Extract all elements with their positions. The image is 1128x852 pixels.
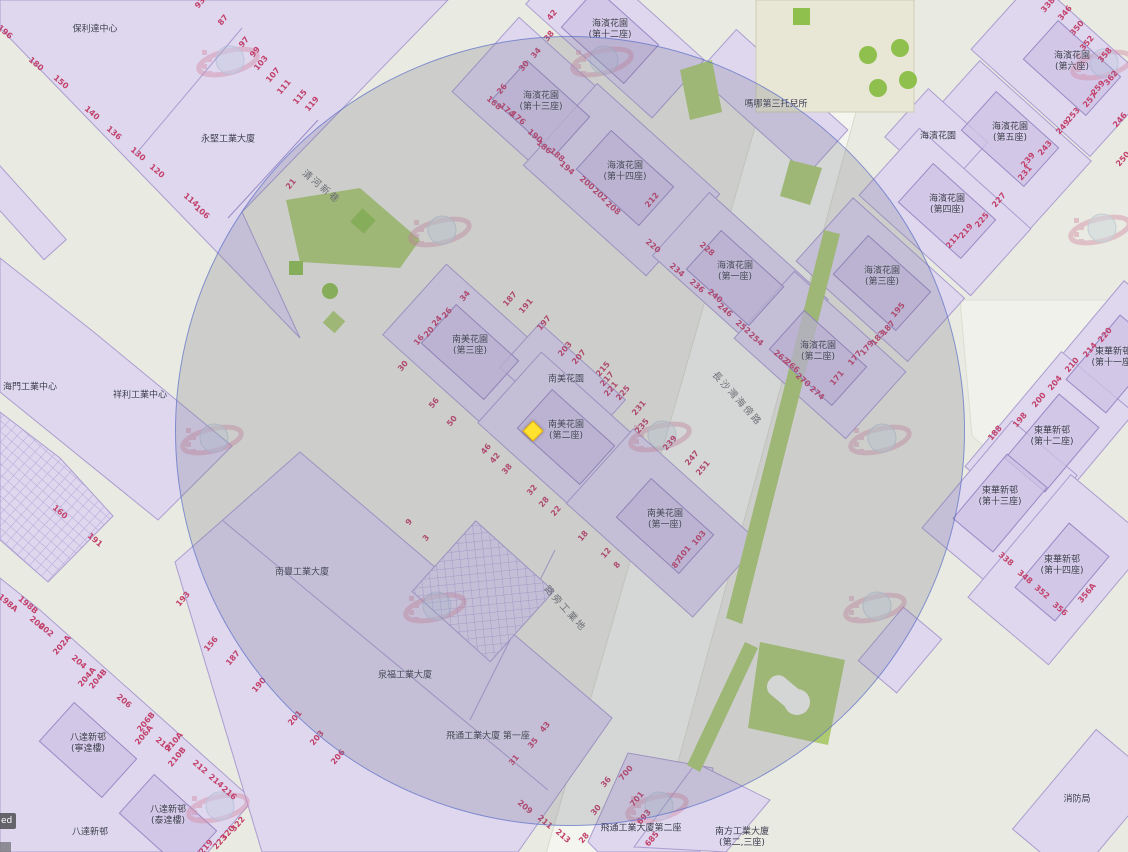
map-base-layer	[0, 0, 1128, 852]
attribution-text: ed	[1, 816, 12, 826]
playground	[756, 0, 917, 112]
attribution-badge: ed	[0, 813, 16, 829]
attribution-badge-small	[0, 842, 11, 852]
map-canvas[interactable]: 1961801501401361301201141069387979910310…	[0, 0, 1128, 852]
